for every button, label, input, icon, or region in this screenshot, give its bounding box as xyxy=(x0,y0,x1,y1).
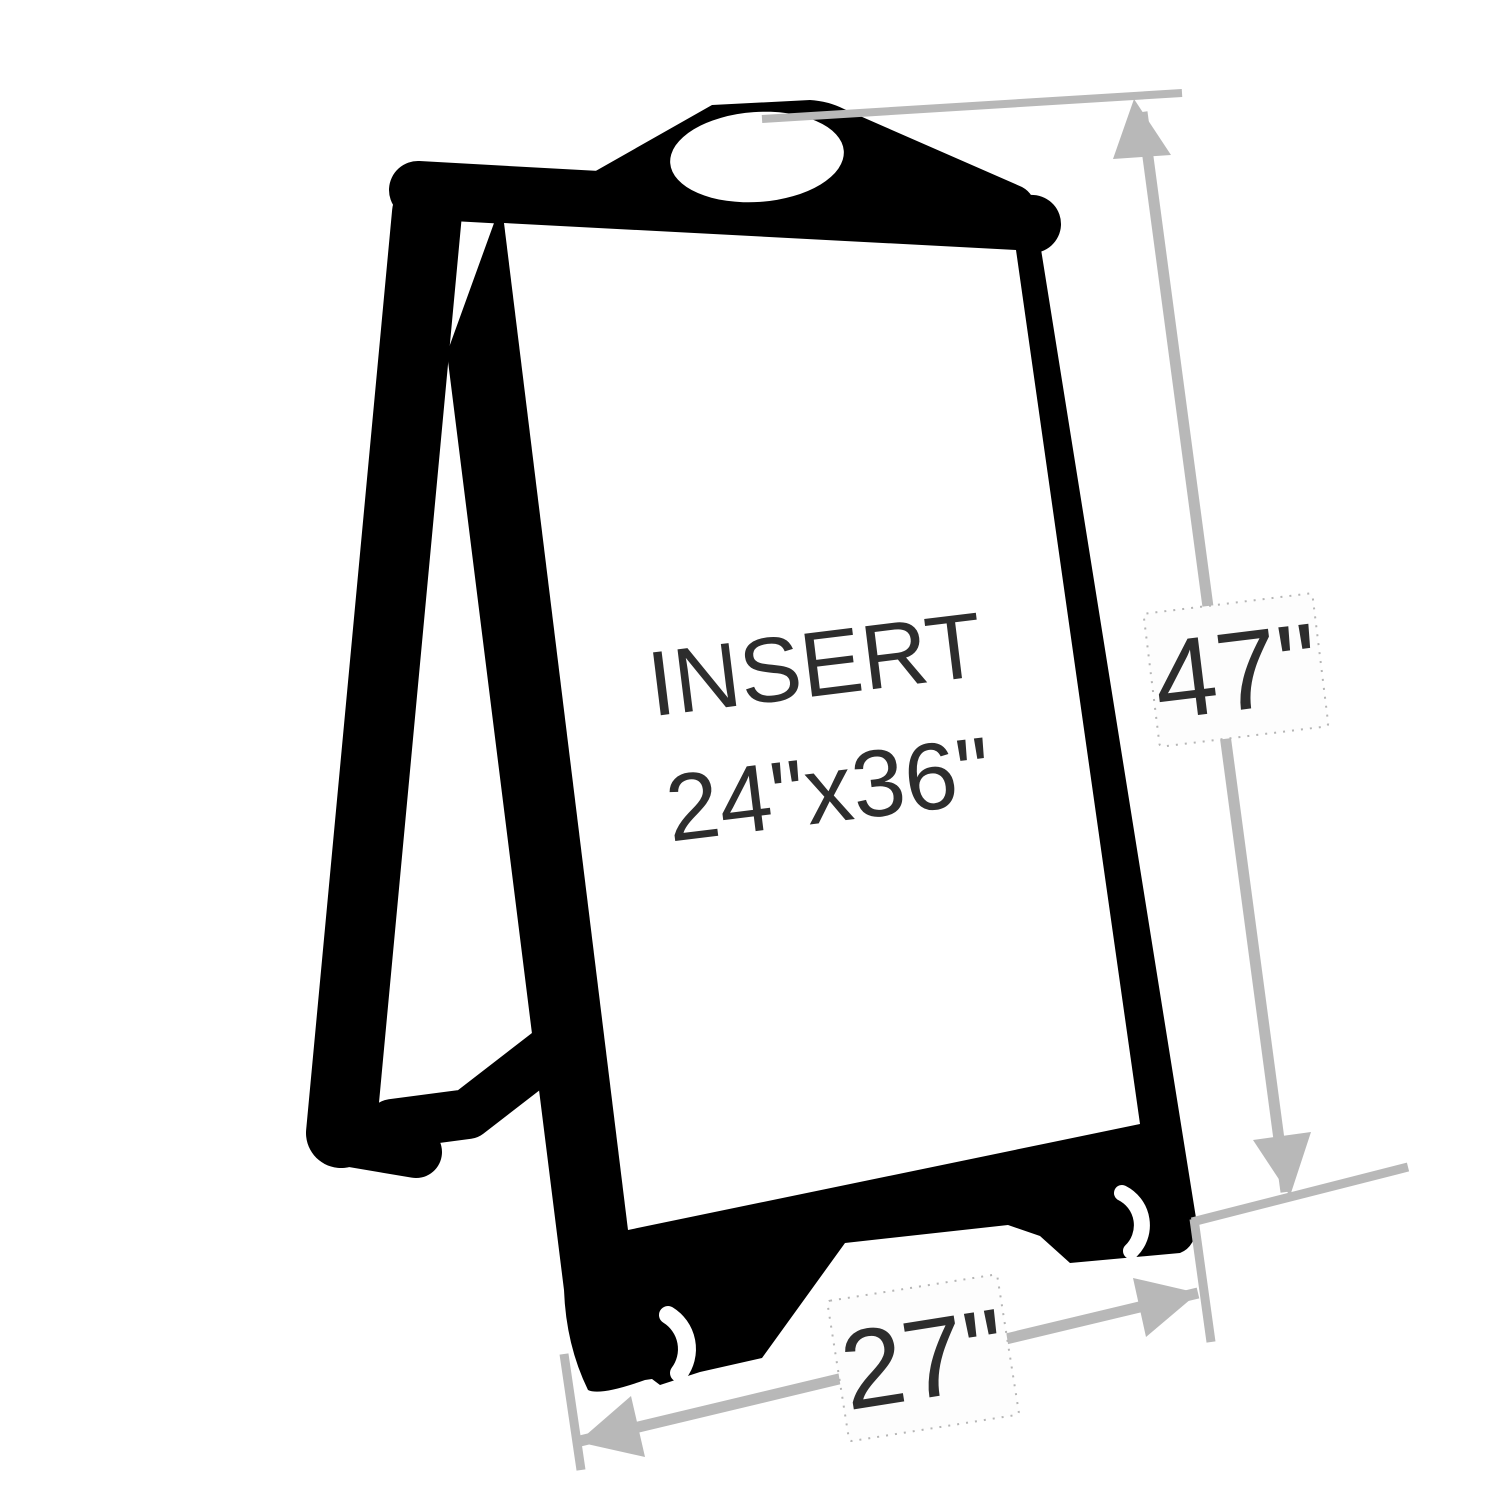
width-label-card: 27" xyxy=(827,1274,1019,1441)
diagram-canvas: 47" 27" INSERT 24"x36" xyxy=(0,0,1500,1500)
height-label: 47" xyxy=(1147,599,1325,743)
width-label: 27" xyxy=(832,1285,1014,1434)
height-label-card: 47" xyxy=(1143,593,1328,747)
a-frame-sign-diagram: 47" 27" INSERT 24"x36" xyxy=(0,0,1500,1500)
